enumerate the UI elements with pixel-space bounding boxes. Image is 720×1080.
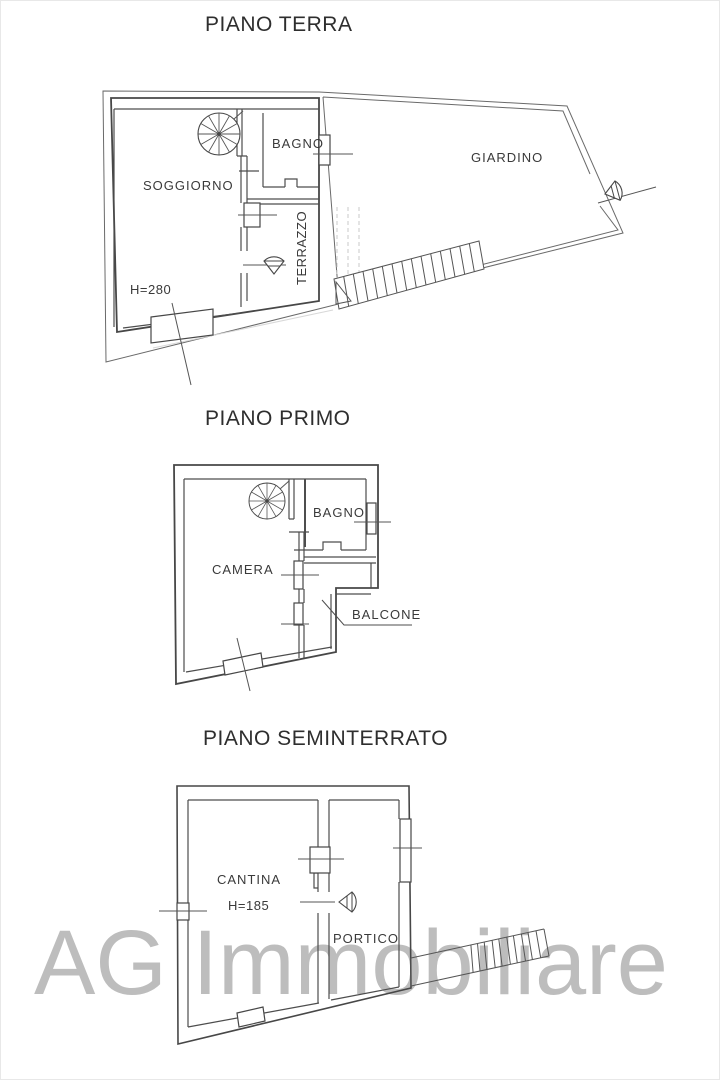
interior-walls xyxy=(188,800,399,1027)
ground-floor-title: PIANO TERRA xyxy=(205,14,352,35)
room-label-cantina: CANTINA xyxy=(217,872,281,887)
first-floor-plan: CAMERA BAGNO BALCONE xyxy=(1,451,720,701)
garden-stairs xyxy=(334,241,484,309)
window xyxy=(294,603,303,625)
room-label-portico: PORTICO xyxy=(333,931,399,946)
opening-ticks xyxy=(159,848,422,911)
height-label-280: H=280 xyxy=(130,282,171,297)
door-swing-icon xyxy=(264,257,284,274)
room-label-balcone: BALCONE xyxy=(352,607,421,622)
room-label-terrazzo: TERRAZZO xyxy=(294,211,309,285)
room-label-bagno: BAGNO xyxy=(313,505,365,520)
spiral-staircase-icon xyxy=(249,483,285,519)
window xyxy=(310,847,330,873)
basement-floor-plan: CANTINA H=185 PORTICO xyxy=(1,771,720,1061)
spiral-stair-tangent xyxy=(280,481,289,489)
first-floor-title: PIANO PRIMO xyxy=(205,408,351,429)
spiral-staircase-icon xyxy=(198,113,240,155)
room-label-soggiorno: SOGGIORNO xyxy=(143,178,234,193)
door-swing-icon xyxy=(339,892,356,912)
room-label-camera: CAMERA xyxy=(212,562,274,577)
room-label-giardino: GIARDINO xyxy=(471,150,543,165)
window xyxy=(367,503,376,534)
gate-door-icon xyxy=(602,180,624,204)
ground-floor-plan: SOGGIORNO BAGNO GIARDINO TERRAZZO H=280 xyxy=(1,81,720,391)
height-label-185: H=185 xyxy=(228,898,269,913)
exterior-stairs xyxy=(411,929,549,986)
floorplan-page: AG Immobiliare PIANO TERRA PIANO PRIMO P… xyxy=(0,0,720,1080)
window xyxy=(400,819,411,882)
room-label-bagno: BAGNO xyxy=(272,136,324,151)
basement-floor-title: PIANO SEMINTERRATO xyxy=(203,728,448,749)
building-outer-wall xyxy=(177,786,411,1044)
